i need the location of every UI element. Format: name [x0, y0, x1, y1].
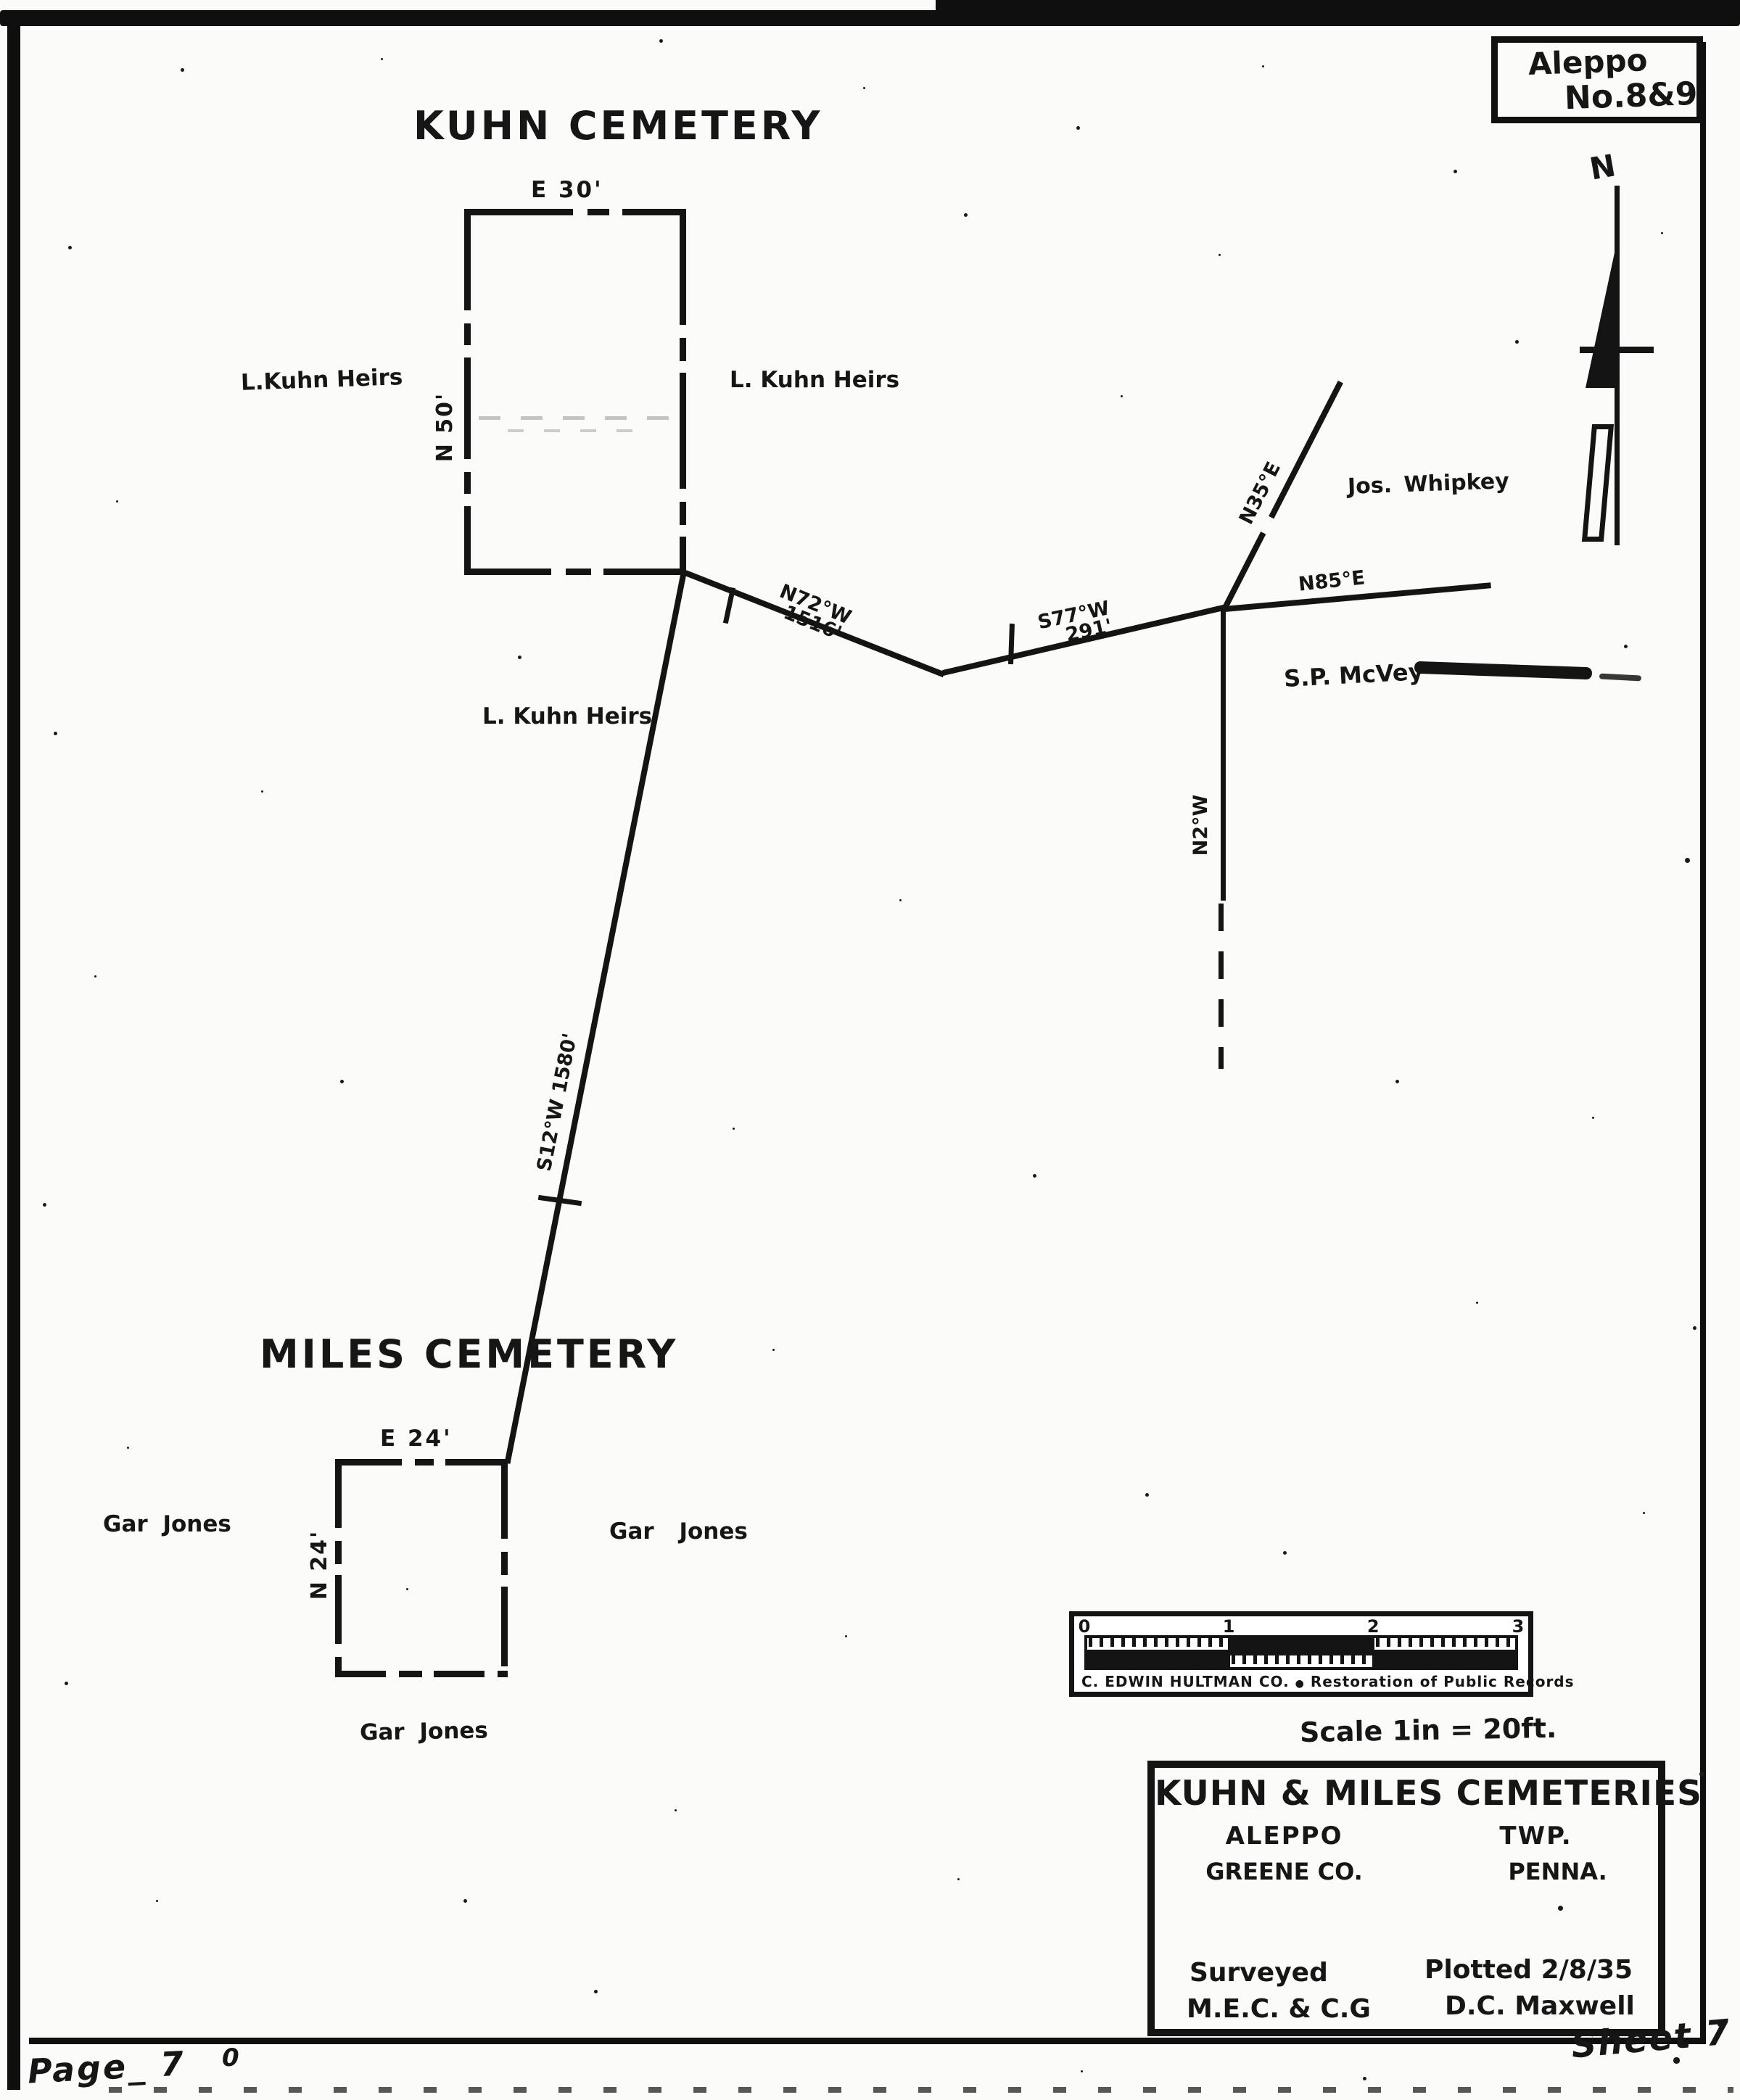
- neighbor-whipkey: Jos. Whipkey: [1347, 468, 1509, 500]
- title-block-township: ALEPPO: [1205, 1822, 1363, 1851]
- title-block-state: PENNA.: [1508, 1858, 1607, 1885]
- kuhn-plot-faint-marks-2: [508, 429, 638, 432]
- kuhn-owner-left: L.Kuhn Heirs: [240, 364, 403, 396]
- scale-bar-numbers: 0 1 2 3: [1084, 1616, 1518, 1635]
- scanned-survey-map: { "corner": { "line1": "Aleppo", "line2"…: [0, 0, 1740, 2100]
- scale-ruler-teeth: [1232, 1655, 1372, 1664]
- kuhn-owner-right: L. Kuhn Heirs: [730, 367, 899, 393]
- miles-plot-right-edge: [501, 1459, 508, 1677]
- footer-stray-mark: 0: [222, 2043, 239, 2072]
- corner-municipality: Aleppo: [1527, 42, 1648, 82]
- north-arrow-n-label: N: [1587, 147, 1618, 186]
- scale-bar-credit-line: C. EDWIN HULTMAN CO. ● Restoration of Pu…: [1081, 1673, 1575, 1690]
- corner-reference-box: Aleppo No.8&9: [1491, 36, 1703, 123]
- kuhn-plot-top-edge: [464, 209, 686, 215]
- scale-bar-ruler: [1084, 1635, 1518, 1670]
- kuhn-owner-below: L. Kuhn Heirs: [482, 703, 652, 729]
- miles-plot-left-edge: [335, 1459, 342, 1677]
- scan-top-band-right: [936, 0, 1740, 13]
- scale-bar-credit-separator: ●: [1295, 1678, 1305, 1690]
- corner-map-number: No.8&9: [1564, 75, 1698, 117]
- survey-tick-n72w: [723, 587, 735, 624]
- north-arrow-crossbar: [1580, 347, 1654, 353]
- title-block-county: GREENE CO.: [1205, 1858, 1363, 1885]
- scale-ruler-cell: [1231, 1635, 1372, 1653]
- bearing-label-n85e: N85°E: [1298, 566, 1366, 595]
- scan-smudge-mcvey: [1414, 661, 1592, 680]
- bearing-label-s77w: S77°W 291': [1036, 597, 1116, 652]
- miles-owner-right: Gar Jones: [609, 1518, 748, 1545]
- miles-plot-top-edge: [335, 1459, 508, 1466]
- scan-bottom-noise: [109, 2087, 1733, 2093]
- kuhn-top-dimension: E 30': [531, 177, 603, 203]
- kuhn-plot-right-edge: [680, 209, 686, 575]
- miles-cemetery-title: MILES CEMETERY: [260, 1331, 678, 1377]
- scale-ruler-cell: [1227, 1653, 1376, 1670]
- scale-ruler-cell: [1084, 1653, 1227, 1670]
- title-block-title: KUHN & MILES CEMETERIES: [1155, 1774, 1658, 1814]
- scan-smudge-mcvey-2: [1599, 673, 1641, 681]
- north-arrow-feather: [1582, 424, 1614, 542]
- scale-tick-0: 0: [1079, 1616, 1091, 1637]
- kuhn-plot-bottom-edge: [464, 569, 686, 575]
- kuhn-plot-left-edge: [464, 209, 471, 575]
- kuhn-cemetery-title: KUHN CEMETERY: [413, 103, 823, 149]
- page-border-right: [1700, 42, 1706, 2039]
- scale-tick-2: 2: [1367, 1616, 1380, 1637]
- title-block-plotted: Plotted 2/8/35: [1424, 1955, 1633, 1985]
- scale-note: Scale 1in = 20ft.: [1300, 1712, 1557, 1748]
- footer-page-number: Page_ 7: [27, 2043, 186, 2091]
- scale-tick-3: 3: [1512, 1616, 1525, 1637]
- title-block-township-suffix: TWP.: [1464, 1822, 1607, 1851]
- boundary-line-n2w-solid: [1221, 609, 1226, 901]
- page-border-bottom: [29, 2038, 1706, 2044]
- scale-bar-credit-note: Restoration of Public Records: [1311, 1673, 1575, 1690]
- north-arrow-head: [1586, 239, 1617, 388]
- miles-top-dimension: E 24': [380, 1426, 453, 1452]
- scale-tick-1: 1: [1223, 1616, 1235, 1637]
- title-block-surveyed-label: Surveyed: [1189, 1958, 1328, 1988]
- miles-plot-bottom-edge: [335, 1671, 508, 1677]
- scale-ruler-cell: [1084, 1635, 1231, 1653]
- bearing-label-n2w: N2°W: [1189, 782, 1211, 869]
- scale-ruler-teeth: [1089, 1638, 1226, 1647]
- boundary-line-n2w-dashed: [1219, 904, 1224, 1069]
- title-block: KUHN & MILES CEMETERIES ALEPPO GREENE CO…: [1147, 1761, 1665, 2036]
- scale-bar-box: 0 1 2 3 C. EDWIN HULTMAN CO. ● Restorati…: [1069, 1611, 1533, 1697]
- neighbor-mcvey: S.P. McVey: [1283, 658, 1424, 693]
- scan-left-bar: [7, 19, 20, 2090]
- miles-side-dimension: N 24': [307, 1518, 331, 1612]
- bearing-label-n72w: N72°W 1516': [770, 580, 854, 646]
- miles-owner-left: Gar Jones: [103, 1511, 231, 1537]
- scale-bar-credit: C. EDWIN HULTMAN CO.: [1081, 1673, 1290, 1690]
- scale-ruler-cell: [1375, 1653, 1518, 1670]
- kuhn-side-dimension: N 50': [432, 380, 457, 474]
- title-block-surveyed-by: M.E.C. & C.G: [1187, 1994, 1371, 2024]
- scale-ruler-teeth: [1376, 1638, 1514, 1647]
- scale-ruler-cell: [1372, 1635, 1518, 1653]
- miles-owner-below: Gar Jones: [360, 1717, 488, 1745]
- kuhn-plot-faint-marks: [479, 416, 676, 420]
- title-block-plotted-by: D.C. Maxwell: [1445, 1991, 1635, 2021]
- scan-speckles: [0, 0, 2, 2]
